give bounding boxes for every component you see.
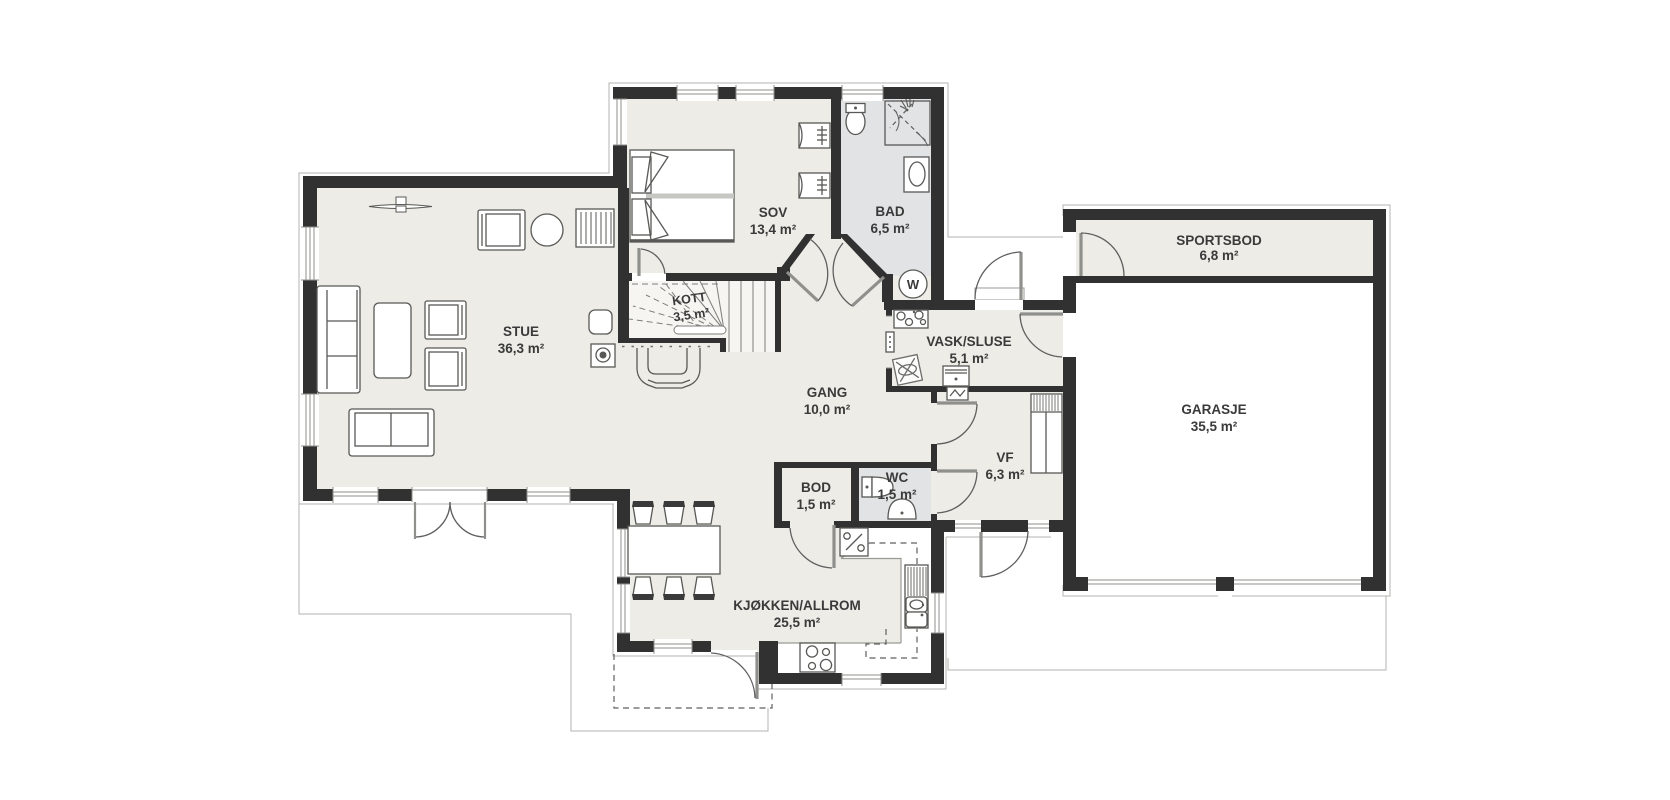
svg-text:6,3 m²: 6,3 m² <box>985 467 1025 482</box>
svg-text:STUE: STUE <box>503 324 539 339</box>
svg-text:5,1 m²: 5,1 m² <box>949 351 989 366</box>
svg-text:1,5 m²: 1,5 m² <box>796 497 836 512</box>
svg-text:W: W <box>907 277 920 292</box>
svg-text:13,4 m²: 13,4 m² <box>750 222 797 237</box>
svg-text:VASK/SLUSE: VASK/SLUSE <box>926 334 1011 349</box>
svg-text:36,3 m²: 36,3 m² <box>498 341 545 356</box>
svg-text:KJØKKEN/ALLROM: KJØKKEN/ALLROM <box>733 598 861 613</box>
svg-text:SOV: SOV <box>759 205 788 220</box>
svg-text:GARASJE: GARASJE <box>1181 402 1246 417</box>
svg-text:BOD: BOD <box>801 480 831 495</box>
svg-text:BAD: BAD <box>875 204 904 219</box>
svg-text:SPORTSBOD: SPORTSBOD <box>1176 233 1262 248</box>
svg-text:GANG: GANG <box>807 385 848 400</box>
svg-text:10,0 m²: 10,0 m² <box>804 402 851 417</box>
svg-text:6,8 m²: 6,8 m² <box>1199 248 1239 263</box>
svg-text:VF: VF <box>996 450 1013 465</box>
svg-text:25,5 m²: 25,5 m² <box>774 615 821 630</box>
svg-text:6,5 m²: 6,5 m² <box>870 221 910 236</box>
svg-text:WC: WC <box>886 470 909 485</box>
svg-text:1,5 m²: 1,5 m² <box>877 487 917 502</box>
svg-text:35,5 m²: 35,5 m² <box>1191 419 1238 434</box>
